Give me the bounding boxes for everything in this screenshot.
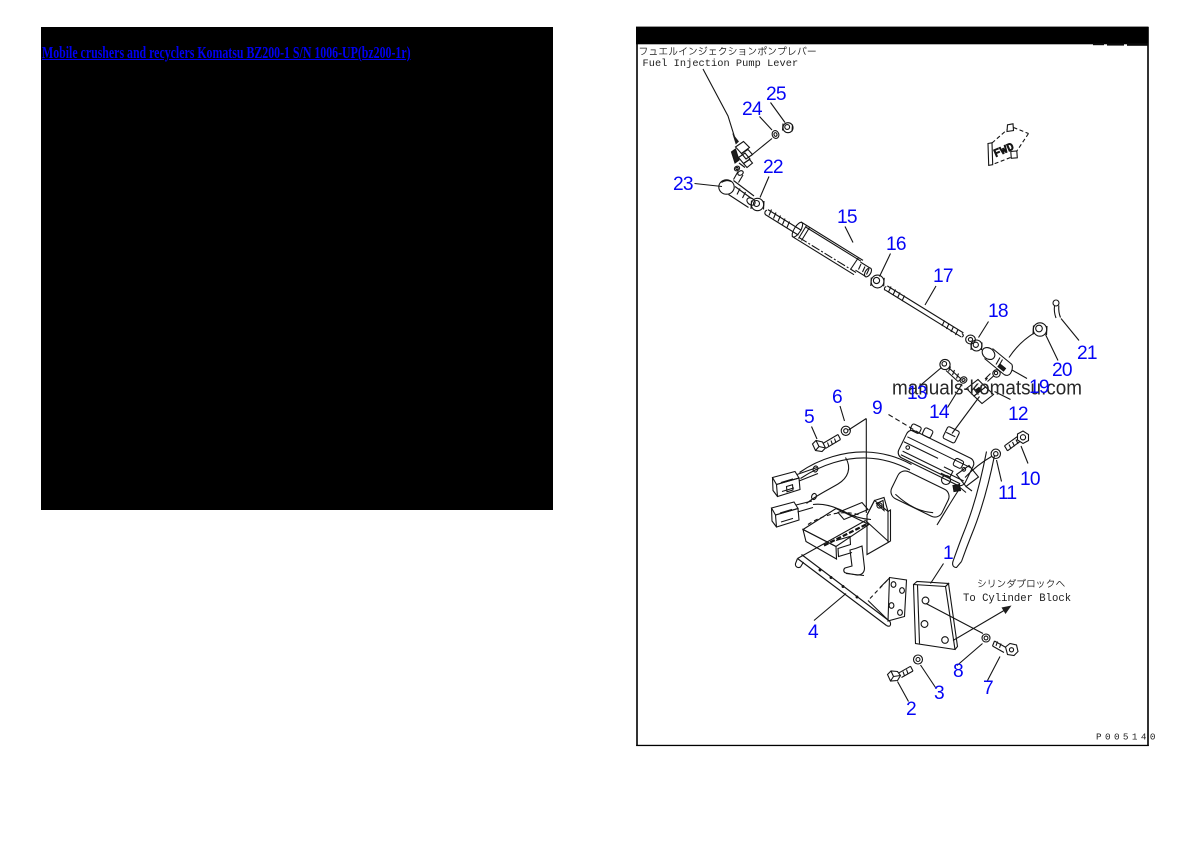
svg-text:13: 13: [907, 383, 927, 404]
svg-text:14: 14: [929, 402, 950, 423]
svg-text:15: 15: [837, 207, 857, 228]
svg-text:21: 21: [1077, 343, 1097, 364]
svg-text:22: 22: [763, 157, 783, 178]
svg-text:P005140: P005140: [1096, 732, 1159, 743]
svg-text:25: 25: [766, 84, 786, 105]
svg-text:1: 1: [943, 543, 953, 564]
svg-text:16: 16: [886, 234, 906, 255]
svg-text:23: 23: [673, 174, 693, 195]
svg-text:24: 24: [742, 99, 763, 120]
svg-text:4: 4: [808, 622, 819, 643]
svg-text:Fuel Injection Pump Lever: Fuel Injection Pump Lever: [643, 58, 799, 70]
svg-text:12: 12: [1008, 404, 1028, 425]
svg-text:17: 17: [933, 266, 953, 287]
svg-text:2: 2: [906, 699, 916, 720]
svg-text:3: 3: [934, 683, 944, 704]
svg-text:8: 8: [953, 661, 963, 682]
svg-text:10: 10: [1020, 469, 1040, 490]
svg-text:7: 7: [983, 678, 993, 699]
svg-text:6: 6: [832, 387, 842, 408]
svg-text:11: 11: [998, 483, 1016, 504]
svg-text:9: 9: [872, 398, 882, 419]
svg-text:5: 5: [804, 407, 814, 428]
svg-text:19: 19: [1029, 377, 1049, 398]
svg-text:18: 18: [988, 301, 1008, 322]
svg-text:To Cylinder Block: To Cylinder Block: [963, 593, 1071, 605]
svg-text:20: 20: [1052, 360, 1072, 381]
